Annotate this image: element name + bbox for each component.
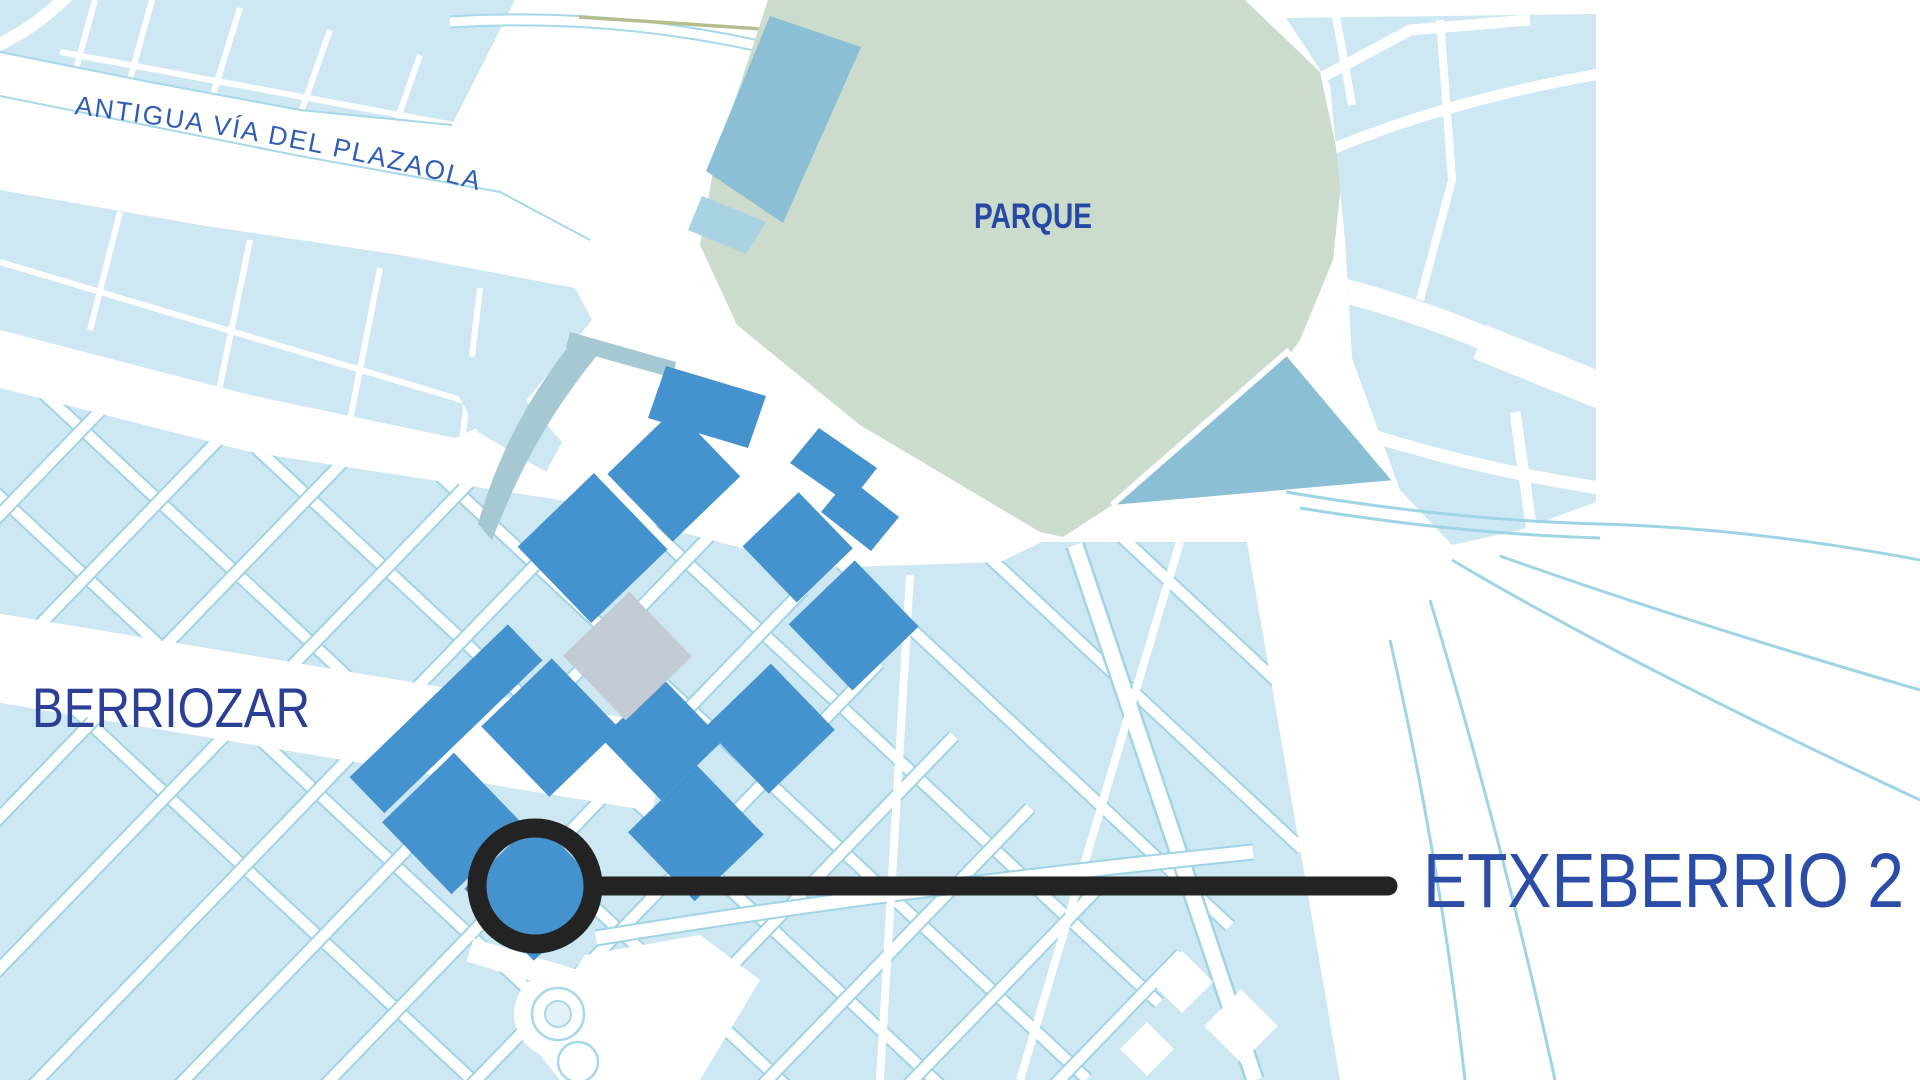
svg-text:ETXEBERRIO 2: ETXEBERRIO 2 xyxy=(1423,838,1904,924)
svg-text:PARQUE: PARQUE xyxy=(974,197,1092,236)
svg-text:BERRIOZAR: BERRIOZAR xyxy=(32,676,310,739)
